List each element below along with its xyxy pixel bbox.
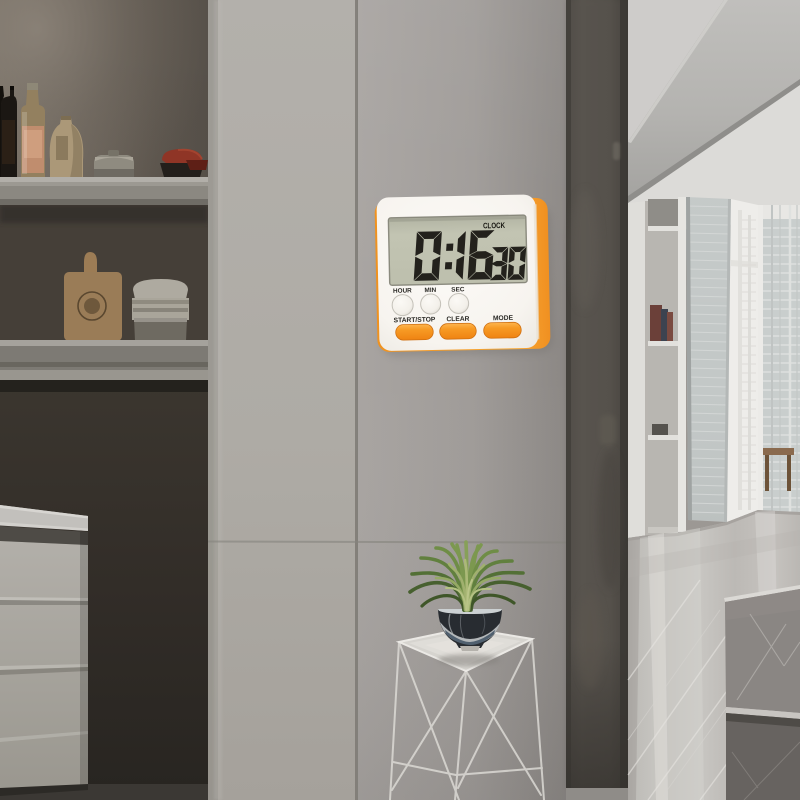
svg-text:SEC: SEC — [451, 286, 465, 293]
svg-text:CLEAR: CLEAR — [446, 316, 469, 323]
svg-text:MODE: MODE — [493, 315, 514, 322]
svg-text:START/STOP: START/STOP — [394, 316, 436, 324]
svg-text:HOUR: HOUR — [393, 287, 412, 294]
svg-text:CLOCK: CLOCK — [483, 221, 505, 230]
svg-text:MIN: MIN — [424, 287, 436, 294]
